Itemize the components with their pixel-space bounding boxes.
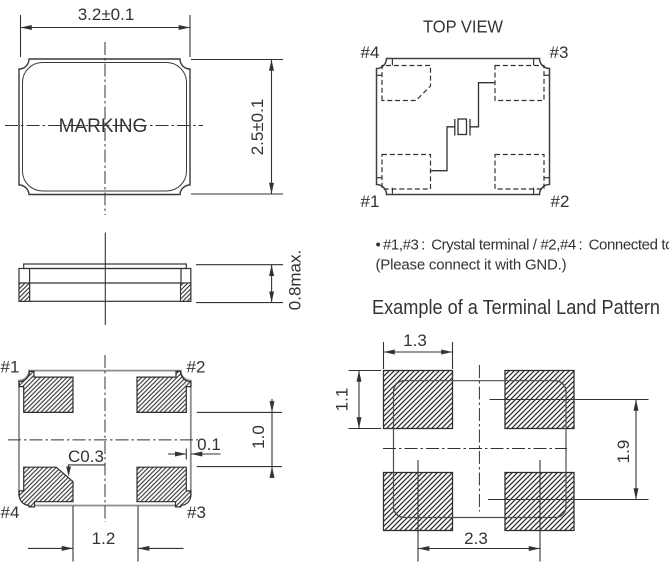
svg-text:2.3: 2.3 xyxy=(464,529,488,548)
svg-text:#3: #3 xyxy=(550,43,569,62)
svg-text:#3: #3 xyxy=(187,503,206,522)
svg-text:TOP VIEW: TOP VIEW xyxy=(423,17,503,37)
svg-text:#4: #4 xyxy=(361,43,380,62)
svg-text:1.9: 1.9 xyxy=(614,440,633,464)
svg-text:0.1: 0.1 xyxy=(197,435,221,454)
svg-text:1.0: 1.0 xyxy=(249,425,268,449)
svg-text:3.2±0.1: 3.2±0.1 xyxy=(78,5,135,24)
svg-text:Example of a Terminal Land Pat: Example of a Terminal Land Pattern xyxy=(372,296,660,319)
svg-text:#2: #2 xyxy=(551,192,570,211)
svg-text:• #1,#3 : Crystal terminal /: • #1,#3 : Crystal terminal / #2,#4 : Con… xyxy=(376,237,669,254)
svg-text:(Please connect it with GND.): (Please connect it with GND.) xyxy=(376,257,567,274)
svg-text:2.5±0.1: 2.5±0.1 xyxy=(248,99,267,156)
svg-text:C0.3: C0.3 xyxy=(68,447,104,466)
svg-text:1.2: 1.2 xyxy=(92,529,116,548)
svg-text:0.8max.: 0.8max. xyxy=(286,250,305,310)
svg-text:#1: #1 xyxy=(1,358,20,377)
svg-text:1.1: 1.1 xyxy=(333,388,352,412)
svg-text:#4: #4 xyxy=(1,503,20,522)
svg-text:#1: #1 xyxy=(361,192,380,211)
svg-text:MARKING: MARKING xyxy=(59,116,148,137)
svg-text:#2: #2 xyxy=(187,358,206,377)
svg-text:1.3: 1.3 xyxy=(403,331,427,350)
